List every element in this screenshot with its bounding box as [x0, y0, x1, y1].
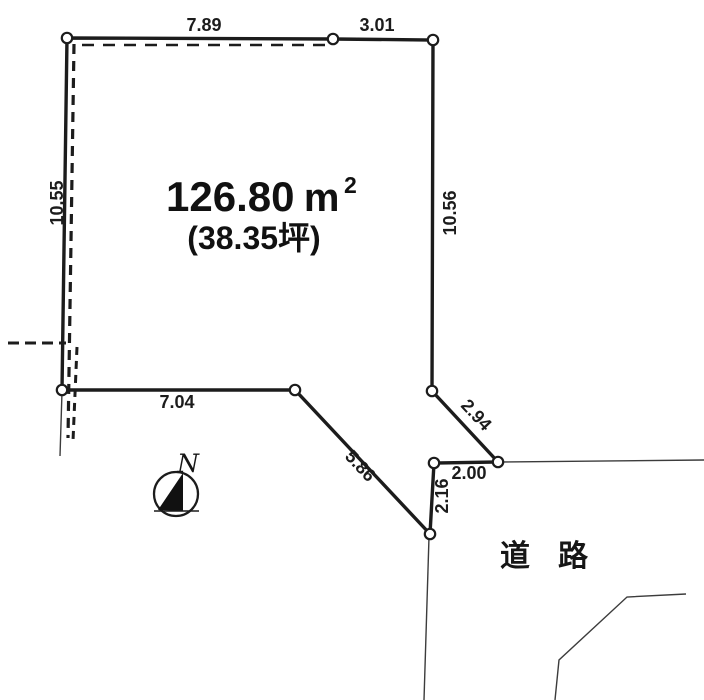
- boundary-extension-line: [60, 392, 62, 456]
- parcel-area-label: 126.80 m 2: [166, 172, 357, 220]
- area-unit-exponent: 2: [344, 172, 357, 198]
- north-compass: N: [154, 449, 200, 516]
- dimension-bottom: 7.04: [159, 392, 194, 412]
- road-label: 道路: [500, 540, 616, 573]
- dimension-lower-diagonal: 5.86: [341, 446, 380, 485]
- vertex-marker: [328, 34, 338, 44]
- vertex-marker: [493, 457, 503, 467]
- dimension-left-side: 10.55: [47, 180, 67, 225]
- dashed-line-left-vertical-second: [73, 347, 77, 441]
- vertex-marker: [429, 458, 439, 468]
- road-edge-left-line: [424, 537, 429, 700]
- road-far-edge-polyline: [555, 594, 686, 700]
- dashed-line-left-vertical: [68, 44, 74, 438]
- vertex-marker: [57, 385, 67, 395]
- dimension-notch-depth: 2.16: [432, 478, 452, 513]
- vertex-marker: [428, 35, 438, 45]
- vertex-marker: [427, 386, 437, 396]
- area-unit: m: [304, 176, 340, 220]
- dimension-upper-diagonal: 2.94: [457, 395, 496, 434]
- road-edge-top-line: [498, 460, 704, 462]
- vertex-marker: [290, 385, 300, 395]
- parcel-area-tsubo-label: (38.35坪): [187, 220, 320, 256]
- vertex-markers: [57, 33, 503, 539]
- dimension-top-left: 7.89: [186, 15, 221, 35]
- dimension-top-right: 3.01: [359, 15, 394, 35]
- dimension-notch-width: 2.00: [451, 463, 486, 483]
- plot-drawing-canvas: 7.89 3.01 10.55 10.56 7.04 5.86 2.94 2.0…: [0, 0, 704, 700]
- land-survey-plot-diagram: 7.89 3.01 10.55 10.56 7.04 5.86 2.94 2.0…: [0, 0, 704, 700]
- vertex-marker: [425, 529, 435, 539]
- dimension-right-side: 10.56: [440, 190, 460, 235]
- vertex-marker: [62, 33, 72, 43]
- area-square-meters-value: 126.80: [166, 173, 294, 220]
- north-letter: N: [176, 449, 200, 478]
